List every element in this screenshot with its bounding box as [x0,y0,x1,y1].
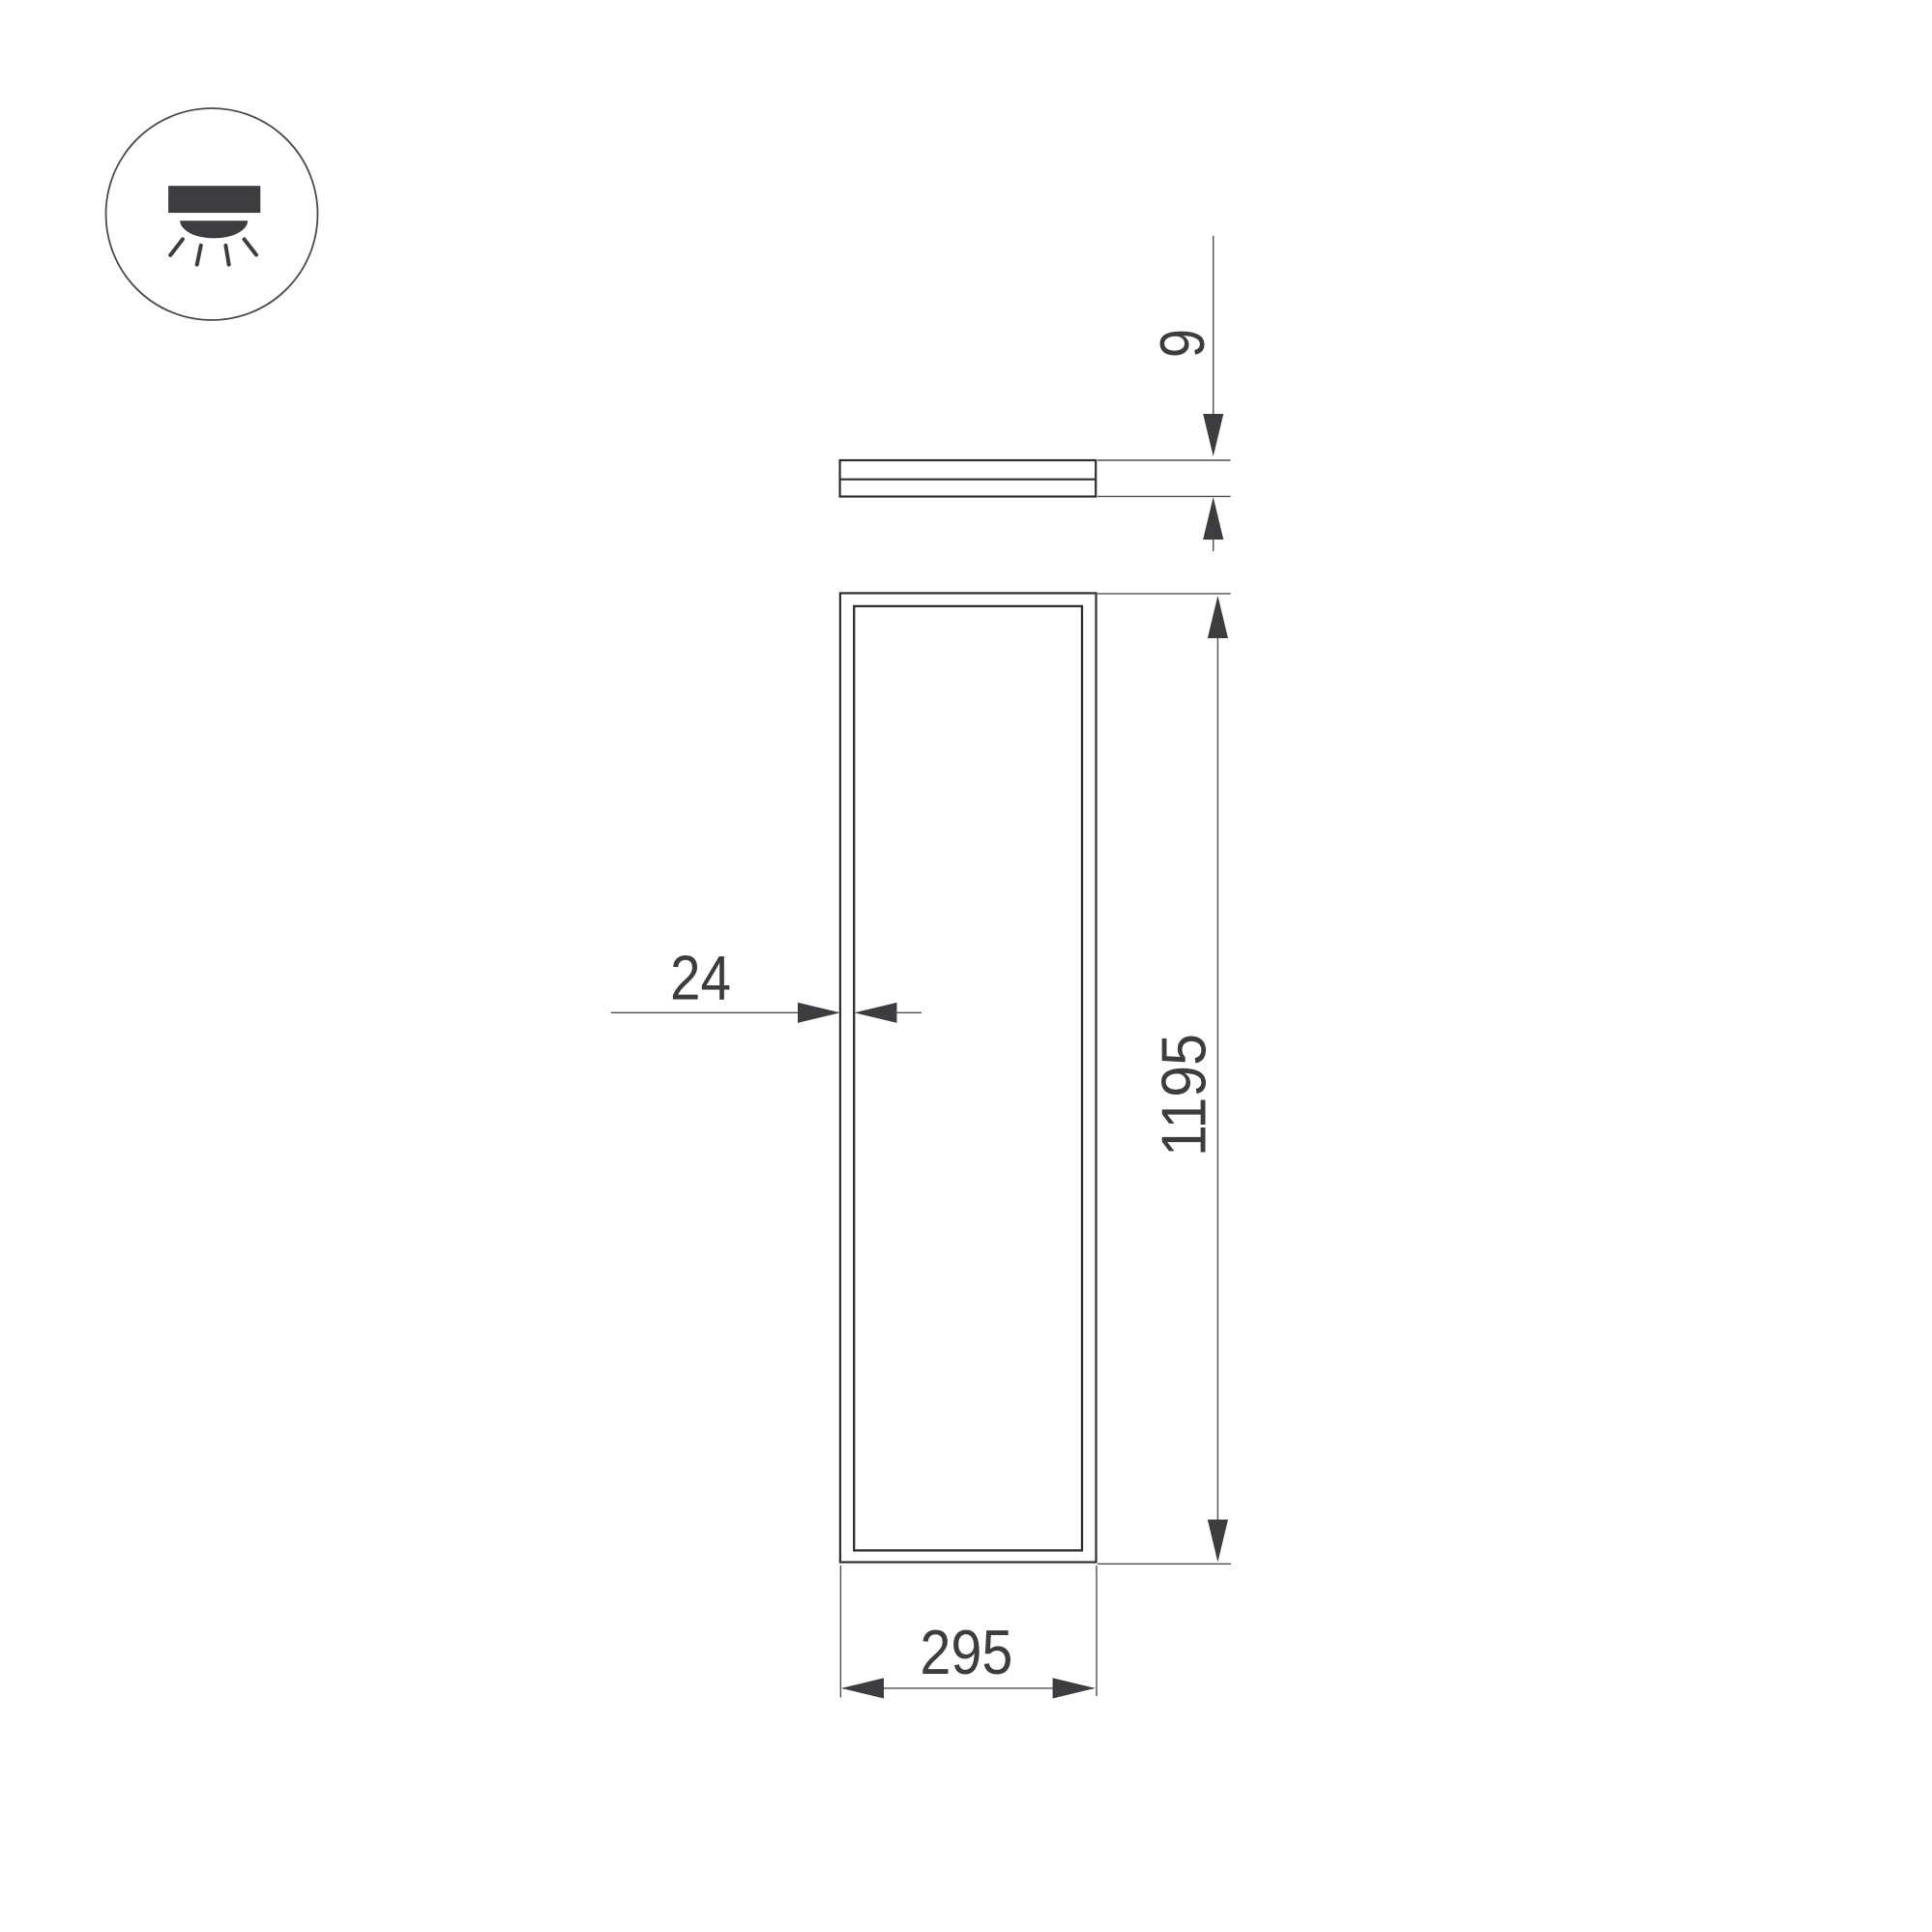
svg-text:24: 24 [670,943,731,1013]
svg-text:295: 295 [920,1617,1012,1687]
svg-text:1195: 1195 [1149,1034,1219,1156]
svg-text:9: 9 [1147,329,1217,358]
